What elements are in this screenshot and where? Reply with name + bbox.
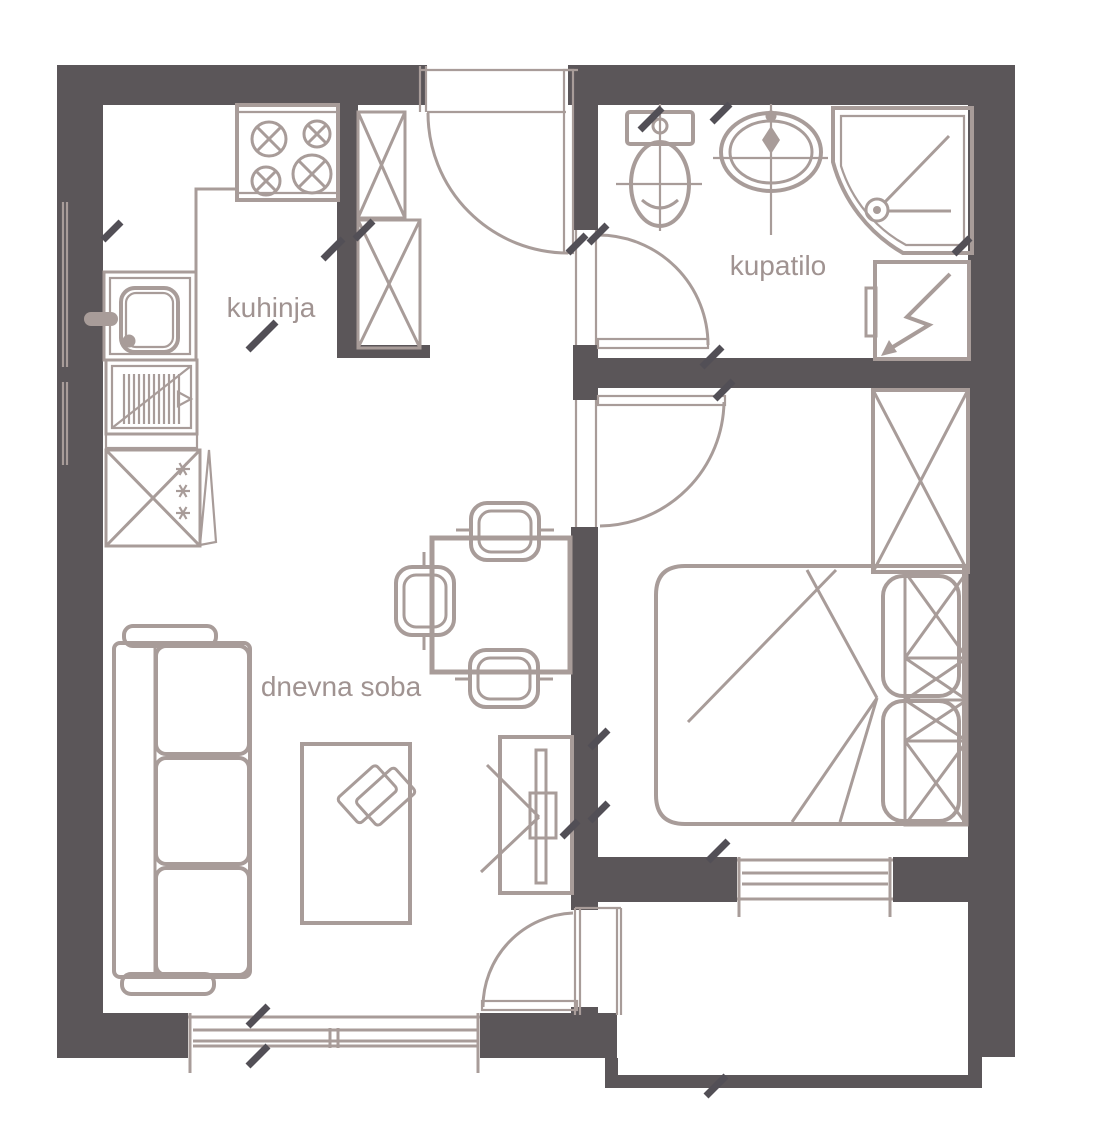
tv-icon [536,750,546,883]
tick-marks [103,104,970,1096]
toilet-icon [616,104,702,231]
bedroom-window [737,857,893,917]
bedroom-door-swing [600,402,724,526]
hall-cabinet-tall-1 [358,112,405,218]
stove-icon [237,105,338,200]
living-room: dnevna soba [114,503,621,1073]
floor-plan-drawing: kuhinja [0,0,1093,1139]
kitchen: kuhinja [84,105,338,546]
bedroom-door [576,396,725,527]
bedroom-door-leaf [598,396,725,405]
entry-door [419,66,578,253]
living-room-label: dnevna soba [261,671,422,702]
bathroom-door-leaf [598,339,708,348]
washbasin-icon [713,104,828,235]
refrigerator-icon [106,450,216,546]
bedroom [576,390,968,917]
bathroom-label: kupatilo [730,250,827,281]
entry-door-swing [428,113,568,253]
dishwasher-icon [106,360,197,448]
floor-plan: kuhinja [0,0,1093,1139]
chair-top-icon [456,503,554,560]
wardrobe-icon [873,390,968,572]
balcony-door-leaf [482,1001,577,1010]
water-heater-icon [866,262,969,359]
corner-shower-icon [833,108,972,253]
sofa-icon [114,626,250,994]
kitchen-counter-edge [196,189,237,272]
chair-left-icon [396,552,454,650]
bathroom: kupatilo [576,104,972,359]
living-room-window [188,1013,480,1073]
bathroom-door-swing [598,235,708,345]
chair-bottom-icon [455,650,553,707]
tv-stand-icon [481,737,572,893]
balcony-door-swing [483,913,573,1007]
coffee-table-icon [302,744,416,923]
kitchen-label: kuhinja [227,292,316,323]
double-bed-icon [656,566,964,824]
balcony-door [482,908,621,1015]
bathroom-door [576,230,708,348]
hall-cabinet-tall-2 [358,220,420,348]
hallway [358,66,578,348]
